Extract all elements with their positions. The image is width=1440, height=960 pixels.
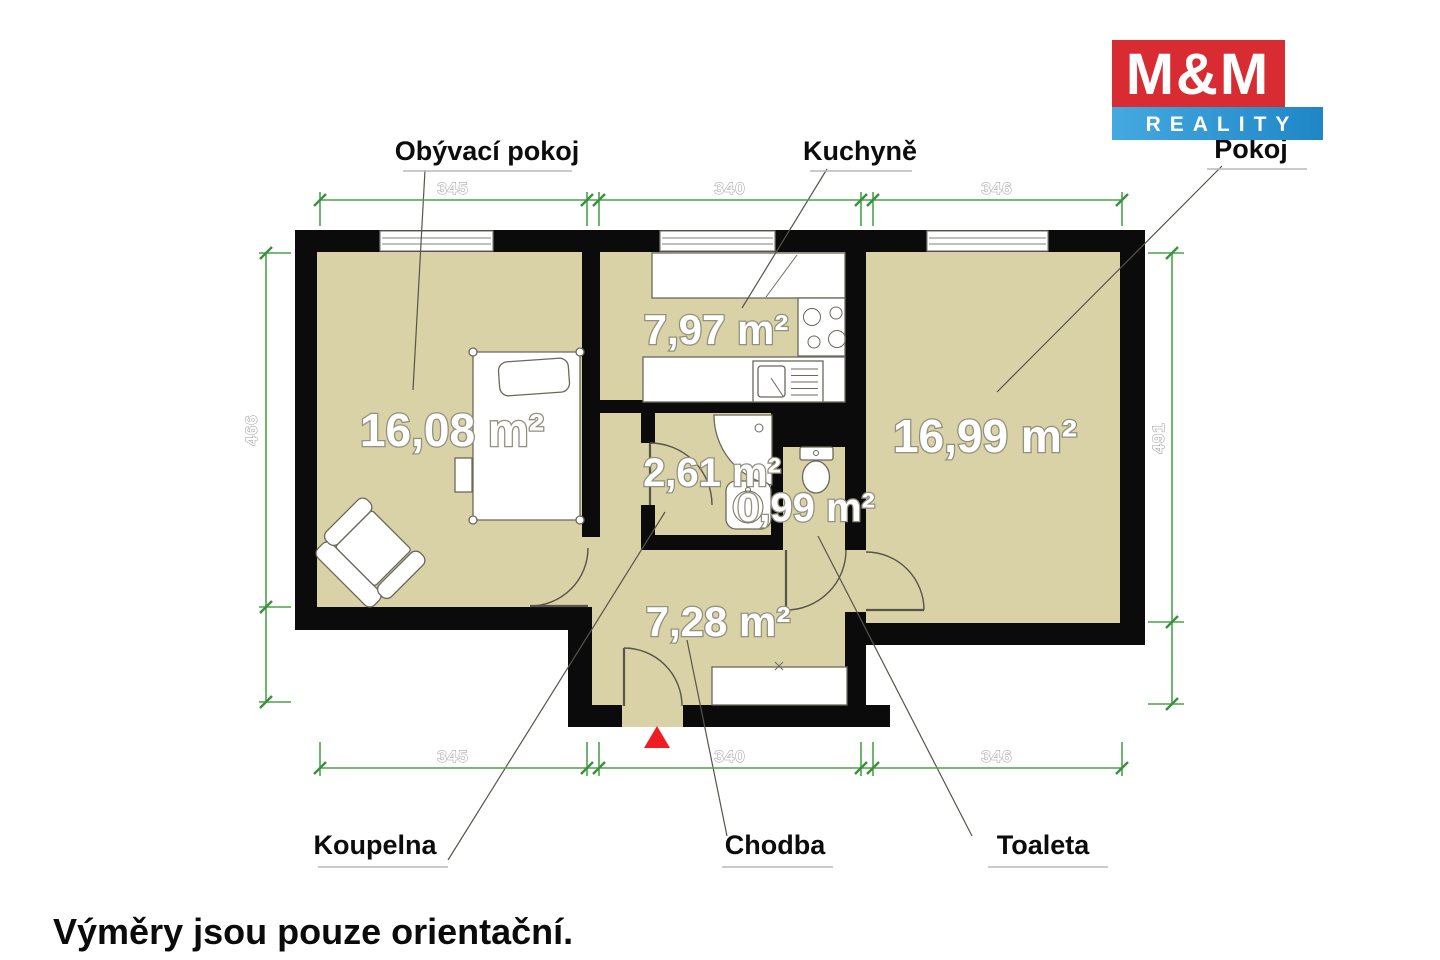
opening-toilet bbox=[783, 535, 845, 550]
label-living: Obývací pokoj bbox=[395, 136, 580, 166]
window-living bbox=[380, 231, 493, 251]
area-kitchen: 7,97 m² bbox=[644, 306, 789, 353]
label-bathroom: Koupelna bbox=[313, 830, 437, 860]
dim-top-1: 345 bbox=[437, 179, 468, 198]
wall-living-kitchen bbox=[582, 252, 600, 537]
dimension-bottom: 345 340 346 bbox=[314, 742, 1128, 776]
kitchen-sink-icon bbox=[753, 361, 823, 402]
wall-kitchen-bedroom bbox=[845, 252, 866, 413]
dim-bottom-3: 346 bbox=[981, 747, 1012, 766]
wall-toilet-top bbox=[771, 413, 845, 447]
dim-left: 466 bbox=[242, 414, 261, 445]
area-bedroom: 16,99 m² bbox=[893, 410, 1077, 462]
dim-right: 491 bbox=[1149, 422, 1168, 453]
floor-plan-drawing: 16,08 m² 7,97 m² 2,61 m² 0,99 m² 7,28 m²… bbox=[0, 0, 1440, 960]
disclaimer-text: Výměry jsou pouze orientační. bbox=[53, 911, 573, 952]
area-toilet: 0,99 m² bbox=[737, 486, 875, 530]
floor-plan-page: 16,08 m² 7,97 m² 2,61 m² 0,99 m² 7,28 m²… bbox=[0, 0, 1440, 960]
wall-step-right bbox=[845, 612, 866, 727]
stove-icon bbox=[798, 298, 846, 356]
logo-reality-text: REALITY bbox=[1146, 113, 1299, 136]
wall-bath-left-a bbox=[641, 413, 655, 443]
closet-icon bbox=[712, 662, 847, 705]
label-kitchen: Kuchyně bbox=[803, 136, 917, 166]
dim-bottom-1: 345 bbox=[437, 747, 468, 766]
wall-living-bottom bbox=[295, 607, 592, 630]
window-bedroom bbox=[927, 231, 1048, 251]
label-hall: Chodba bbox=[725, 830, 826, 860]
windows bbox=[380, 231, 1048, 251]
opening-entrance bbox=[622, 705, 683, 727]
dimension-top: 345 340 346 bbox=[314, 179, 1128, 226]
area-hall: 7,28 m² bbox=[646, 598, 791, 645]
dim-bottom-2: 340 bbox=[714, 747, 745, 766]
area-living: 16,08 m² bbox=[360, 404, 544, 456]
dimension-left: 466 bbox=[242, 247, 291, 708]
opening-bedroom bbox=[845, 550, 866, 612]
dimension-right: 491 bbox=[1148, 247, 1184, 710]
logo-mm-text: M&M bbox=[1126, 42, 1271, 107]
dim-top-2: 340 bbox=[714, 179, 745, 198]
wall-right bbox=[1120, 230, 1145, 645]
wall-hall-bottom bbox=[568, 705, 890, 727]
opening-living bbox=[582, 537, 600, 607]
wall-bath-bottom bbox=[641, 535, 783, 550]
company-logo: M&M REALITY bbox=[1112, 40, 1323, 140]
dim-top-3: 346 bbox=[981, 179, 1012, 198]
label-toilet: Toaleta bbox=[997, 830, 1091, 860]
wall-bedroom-bottom bbox=[866, 623, 1145, 645]
entrance-marker bbox=[644, 726, 670, 748]
window-kitchen bbox=[660, 231, 775, 251]
wall-left bbox=[295, 230, 317, 630]
